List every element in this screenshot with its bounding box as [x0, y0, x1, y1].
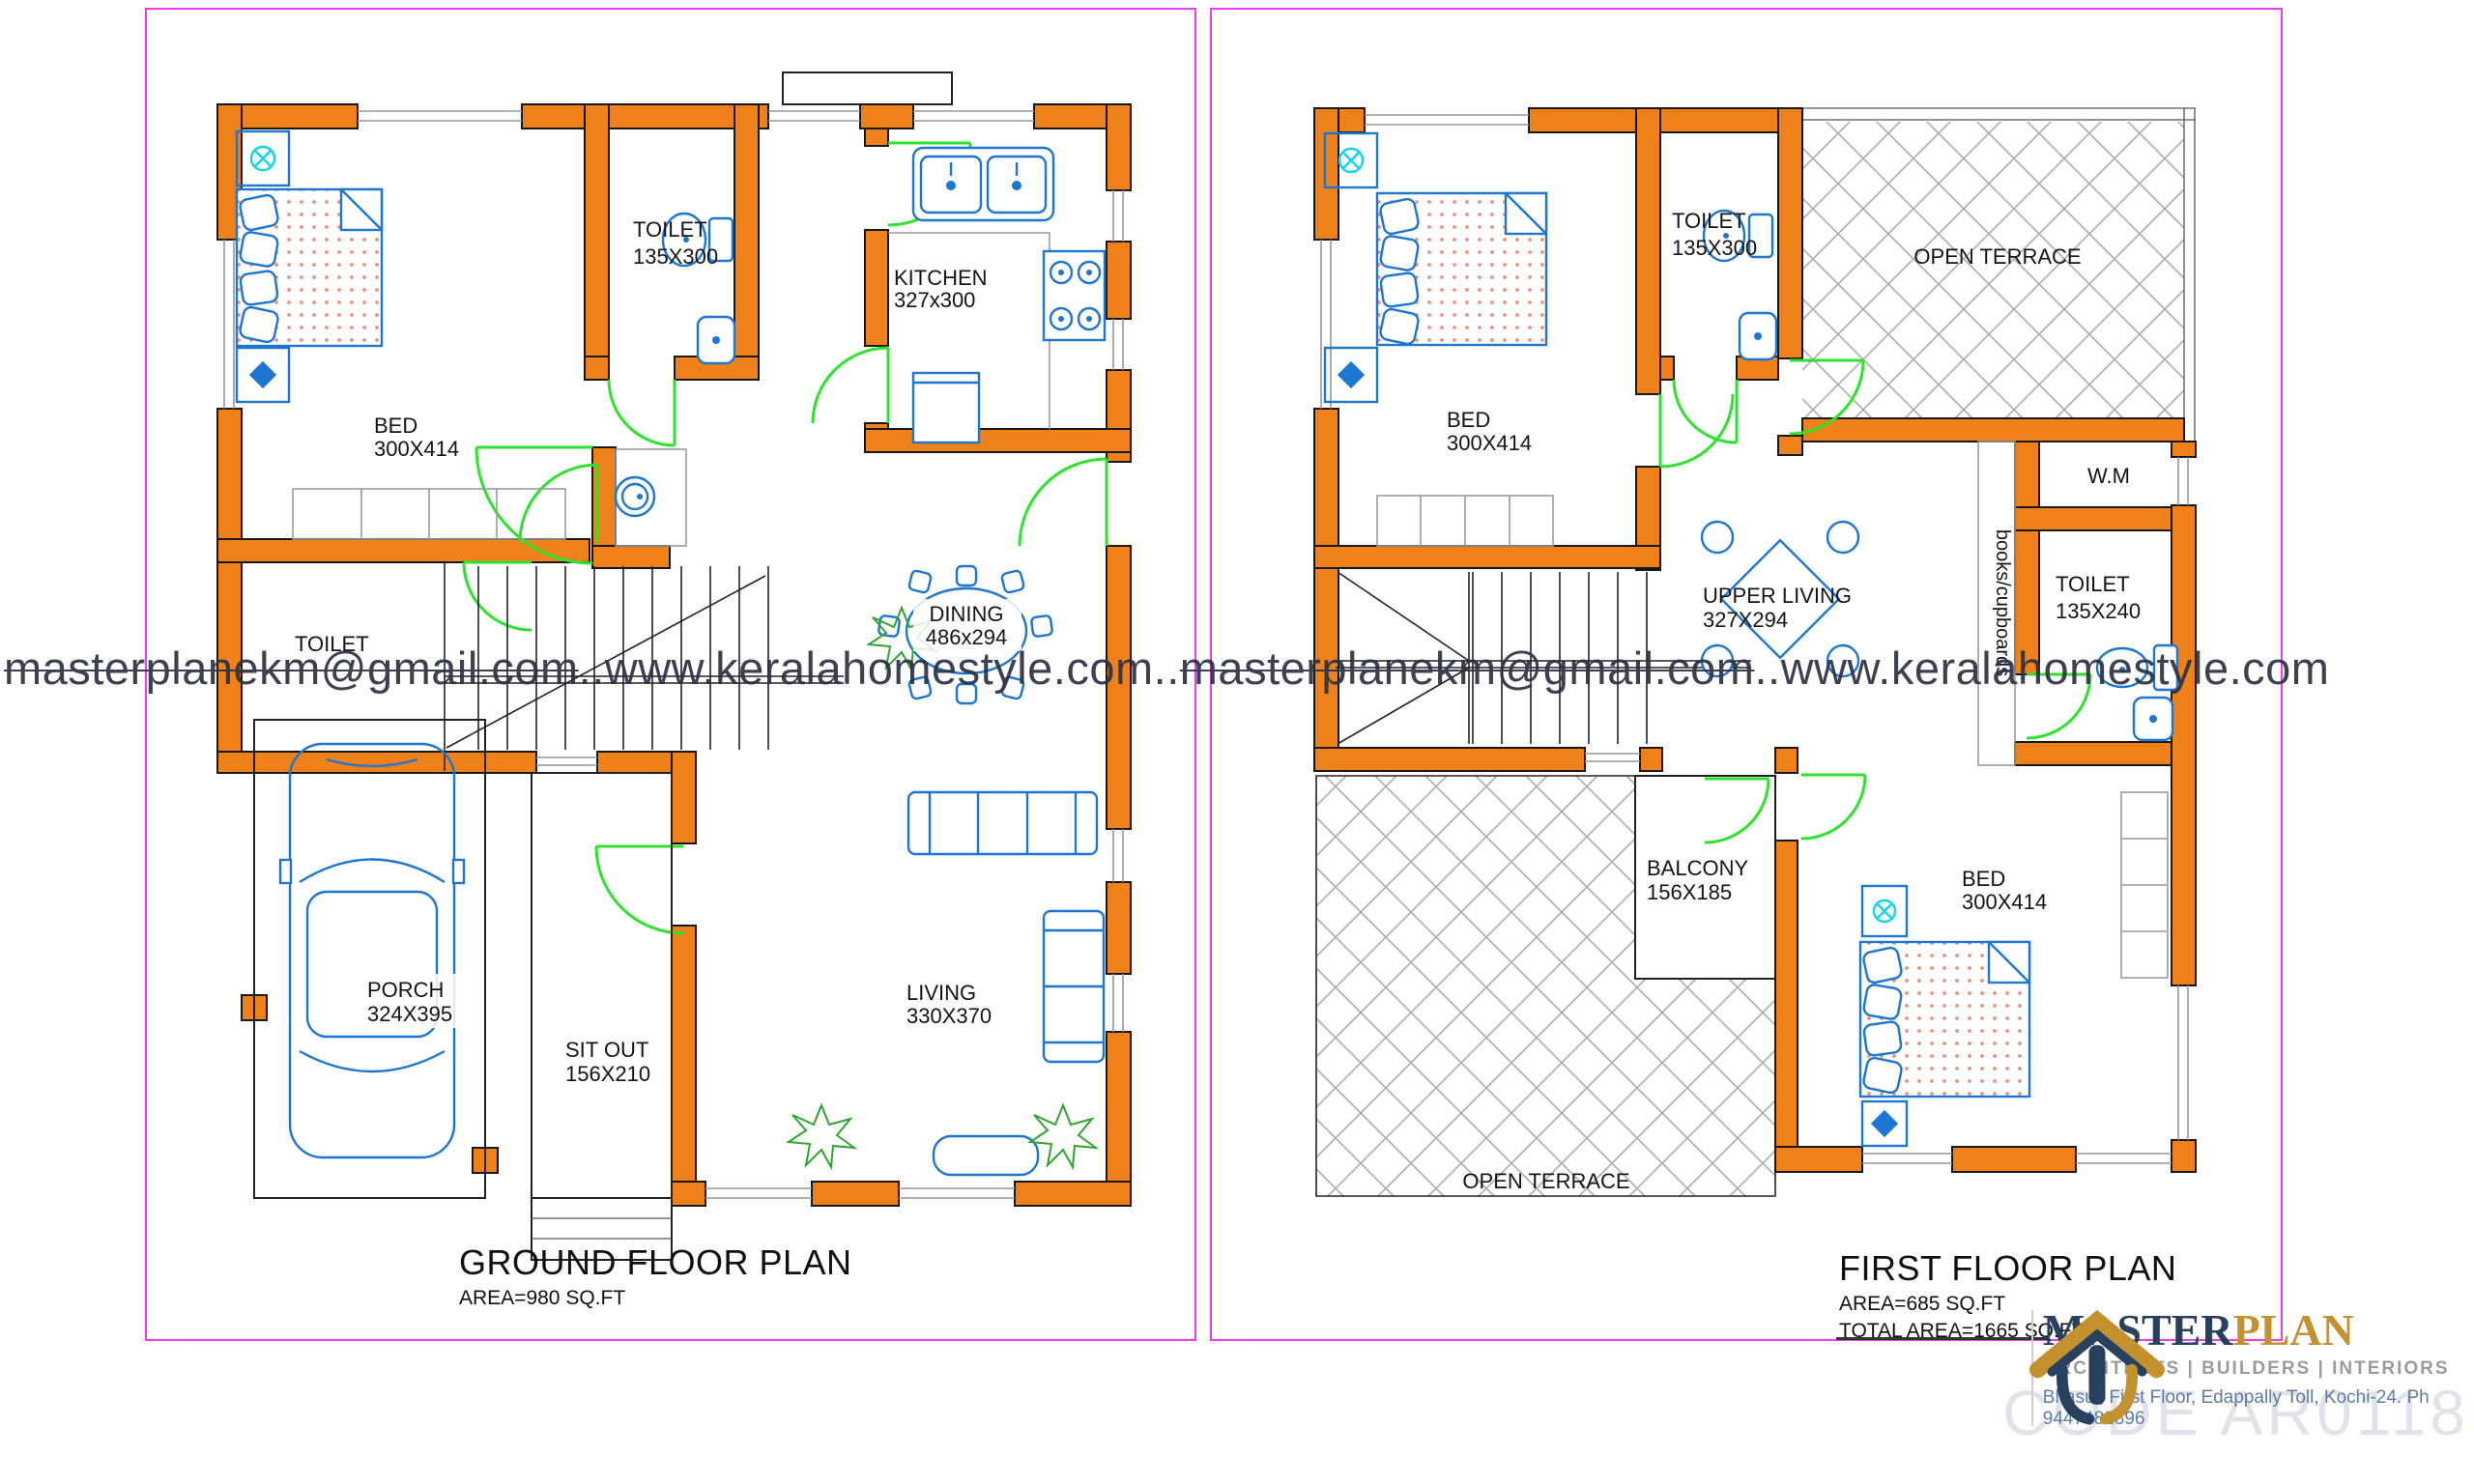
room-label-balcony: BALCONY: [1647, 856, 1748, 880]
room-label-porch: PORCH: [367, 978, 444, 1002]
floor-plan-sheet: BED 300X414 TOILET 135X300 KITCHEN 327x3…: [0, 0, 2474, 1484]
room-label-kitchen: KITCHEN: [894, 266, 988, 290]
room-dims-sitout: 156X210: [565, 1062, 650, 1086]
fan-icon: [1339, 149, 1363, 172]
room-dims-bed: 300X414: [374, 437, 459, 461]
sink-icon: [913, 148, 1053, 220]
title-underline: [1836, 1337, 2047, 1340]
lamp-icon: [249, 361, 276, 388]
room-label-toilet-top: TOILET: [1672, 209, 1746, 233]
room-dims-balcony: 156X185: [1647, 880, 1732, 904]
stove-icon: [1044, 251, 1105, 340]
chimney-outline: [783, 72, 952, 104]
ground-floor-title-block: GROUND FLOOR PLAN AREA=980 SQ.FT: [459, 1242, 852, 1310]
watermark-email: masterplanekm@gmail.com: [1180, 642, 1755, 694]
room-dims-kitchen: 327x300: [894, 288, 975, 312]
watermark-text: masterplanekm@gmail.com..www.keralahomes…: [4, 642, 2474, 699]
room-label-open-terrace-top: OPEN TERRACE: [1913, 244, 2081, 269]
room-label-toilet-top: TOILET: [633, 217, 707, 242]
room-label-open-terrace-bottom: OPEN TERRACE: [1462, 1169, 1629, 1193]
fridge-icon: [913, 373, 979, 442]
watermark-site: www.keralahomestyle.com: [1781, 642, 2330, 694]
plant-icon: [789, 1105, 854, 1167]
lamp-icon: [1871, 1110, 1898, 1137]
coffee-table-icon: [934, 1136, 1038, 1175]
washbasin-icon: [616, 449, 686, 546]
room-label-living: LIVING: [906, 981, 976, 1005]
room-dims-bed-bottom: 300X414: [1962, 890, 2047, 914]
room-dims-upper-living: 327X294: [1703, 608, 1788, 632]
fan-icon: [251, 147, 274, 170]
ground-floor-title: GROUND FLOOR PLAN: [459, 1242, 852, 1283]
room-label-dining: DINING: [930, 602, 1004, 626]
masterplan-logo: MASTERPLAN ARCHITECTS | BUILDERS | INTER…: [2029, 1302, 2474, 1482]
room-dims-porch: 324X395: [367, 1002, 452, 1026]
masterplan-house-icon: [2029, 1302, 2165, 1445]
room-label-wm: W.M: [2087, 464, 2130, 488]
room-dims-bed-top: 300X414: [1447, 431, 1532, 455]
wardrobe: [2121, 792, 2168, 978]
room-label-bed-bottom: BED: [1962, 867, 2005, 891]
room-label-bed: BED: [374, 414, 417, 438]
watermark-email: masterplanekm@gmail.com: [4, 642, 579, 694]
car-icon: [280, 744, 464, 1157]
room-dims-living: 330X370: [906, 1004, 992, 1028]
sofa-icon: [908, 792, 1097, 854]
wc-icon: [1704, 211, 1776, 359]
room-dims-toilet-top: 135X300: [633, 244, 718, 269]
ground-floor-area: AREA=980 SQ.FT: [459, 1287, 852, 1310]
fan-icon: [1874, 900, 1895, 922]
bed-icon: [1325, 133, 1553, 546]
watermark-site: www.keralahomestyle.com: [605, 642, 1154, 694]
bed-icon: [1860, 792, 2168, 1146]
plant-icon: [1030, 1105, 1096, 1167]
room-label-toilet-right: TOILET: [2056, 572, 2130, 596]
room-label-sitout: SIT OUT: [565, 1038, 648, 1062]
room-dims-toilet-right: 135X240: [2056, 599, 2141, 623]
room-label-bed-top: BED: [1447, 408, 1490, 432]
room-label-upper-living: UPPER LIVING: [1703, 584, 1852, 608]
sofa-icon: [1044, 911, 1104, 1062]
wardrobe: [1377, 496, 1553, 546]
first-floor-title: FIRST FLOOR PLAN: [1839, 1248, 2176, 1289]
bed-icon: [237, 131, 565, 539]
room-dims-toilet-top: 135X300: [1672, 236, 1757, 260]
lamp-icon: [1338, 361, 1365, 388]
